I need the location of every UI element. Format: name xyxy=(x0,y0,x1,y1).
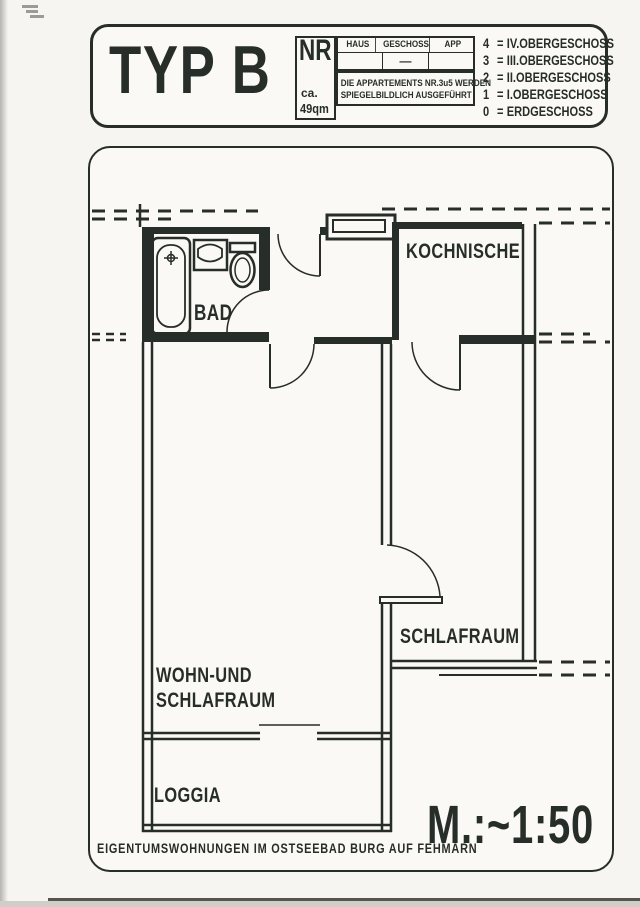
room-label-loggia: LOGGIA xyxy=(154,784,221,808)
col-app: APP xyxy=(436,38,470,52)
col-geschoss: GESCHOSS xyxy=(383,38,430,52)
room-label-schlafraum: SCHLAFRAUM xyxy=(400,625,519,649)
room-label-bad: BAD xyxy=(194,300,232,326)
scale-label: M.:~1:50 xyxy=(427,794,594,856)
legend-row: 2 = II.OBERGESCHOSS xyxy=(483,70,614,87)
haus-value xyxy=(338,53,383,69)
room-label-wohn-schlafraum: WOHN-UND SCHLAFRAUM xyxy=(156,663,275,713)
floor-plan-frame: BAD KOCHNISCHE SCHLAFRAUM WOHN-UND SCHLA… xyxy=(88,146,614,872)
title-block: TYP B NR ca. 49qm HAUS GESCHOSS APP — DI… xyxy=(90,24,608,128)
legend-value: ERDGESCHOSS xyxy=(507,104,593,121)
toilet-icon xyxy=(230,243,255,287)
nr-label: NR xyxy=(299,34,332,68)
legend-value: I.OBERGESCHOSS xyxy=(507,87,608,104)
area-value: 49qm xyxy=(300,101,329,116)
nr-column: NR ca. 49qm xyxy=(295,36,336,120)
legend-row: 0 = ERDGESCHOSS xyxy=(483,104,614,121)
geschoss-value: — xyxy=(383,53,428,69)
living-room-door xyxy=(270,344,314,388)
kitchen-bedroom-door xyxy=(412,342,460,390)
dashed-wall-lines xyxy=(92,209,610,675)
room-label-kochnische: KOCHNISCHE xyxy=(406,240,520,264)
legend-equals: = xyxy=(494,104,507,121)
legend-key: 3 xyxy=(483,53,494,70)
bathtub-icon xyxy=(152,238,190,334)
scanned-floor-plan-page: TYP B NR ca. 49qm HAUS GESCHOSS APP — DI… xyxy=(0,0,640,907)
mirror-note-line1: DIE APPARTEMENTS NR.3u5 WERDEN xyxy=(338,77,462,89)
entry-door xyxy=(278,234,320,276)
type-label: TYP B xyxy=(109,31,272,109)
legend-row: 4 = IV.OBERGESCHOSS xyxy=(483,36,614,53)
dashed-left-stub xyxy=(92,334,126,340)
mirror-note-line2: SPIEGELBILDLICH AUSGEFÜHRT xyxy=(338,89,462,101)
project-caption: EIGENTUMSWOHNUNGEN IM OSTSEEBAD BURG AUF… xyxy=(97,840,477,856)
area-prefix: ca. xyxy=(301,86,318,100)
wohn-line2: SCHLAFRAUM xyxy=(156,688,275,713)
sink-icon xyxy=(194,240,227,270)
legend-key: 0 xyxy=(483,104,494,121)
app-value xyxy=(429,53,473,69)
legend-row: 1 = I.OBERGESCHOSS xyxy=(483,87,614,104)
legend-equals: = xyxy=(494,36,507,53)
bedroom-door xyxy=(380,545,442,603)
floor-plan-drawing xyxy=(90,148,612,870)
legend-equals: = xyxy=(494,53,507,70)
table-value-row: — xyxy=(338,53,473,69)
legend-value: III.OBERGESCHOSS xyxy=(507,53,614,70)
floor-legend: 4 = IV.OBERGESCHOSS 3 = III.OBERGESCHOSS… xyxy=(483,36,640,121)
col-haus: HAUS xyxy=(341,38,375,52)
legend-key: 1 xyxy=(483,87,494,104)
scan-edge-bottom-light xyxy=(0,901,640,907)
legend-value: II.OBERGESCHOSS xyxy=(507,70,611,87)
wardrobe-niche xyxy=(327,215,395,239)
legend-key: 4 xyxy=(483,36,494,53)
legend-equals: = xyxy=(494,70,507,87)
wohn-line1: WOHN-UND xyxy=(156,663,275,688)
legend-row: 3 = III.OBERGESCHOSS xyxy=(483,53,614,70)
apartment-number-table: HAUS GESCHOSS APP — xyxy=(336,36,475,71)
bathroom-door xyxy=(227,290,269,332)
legend-value: IV.OBERGESCHOSS xyxy=(507,36,614,53)
legend-equals: = xyxy=(494,87,507,104)
mirror-note: DIE APPARTEMENTS NR.3u5 WERDEN SPIEGELBI… xyxy=(336,71,475,106)
legend-key: 2 xyxy=(483,70,494,87)
table-header-row: HAUS GESCHOSS APP xyxy=(338,38,473,53)
scan-shadow-left xyxy=(0,0,8,907)
